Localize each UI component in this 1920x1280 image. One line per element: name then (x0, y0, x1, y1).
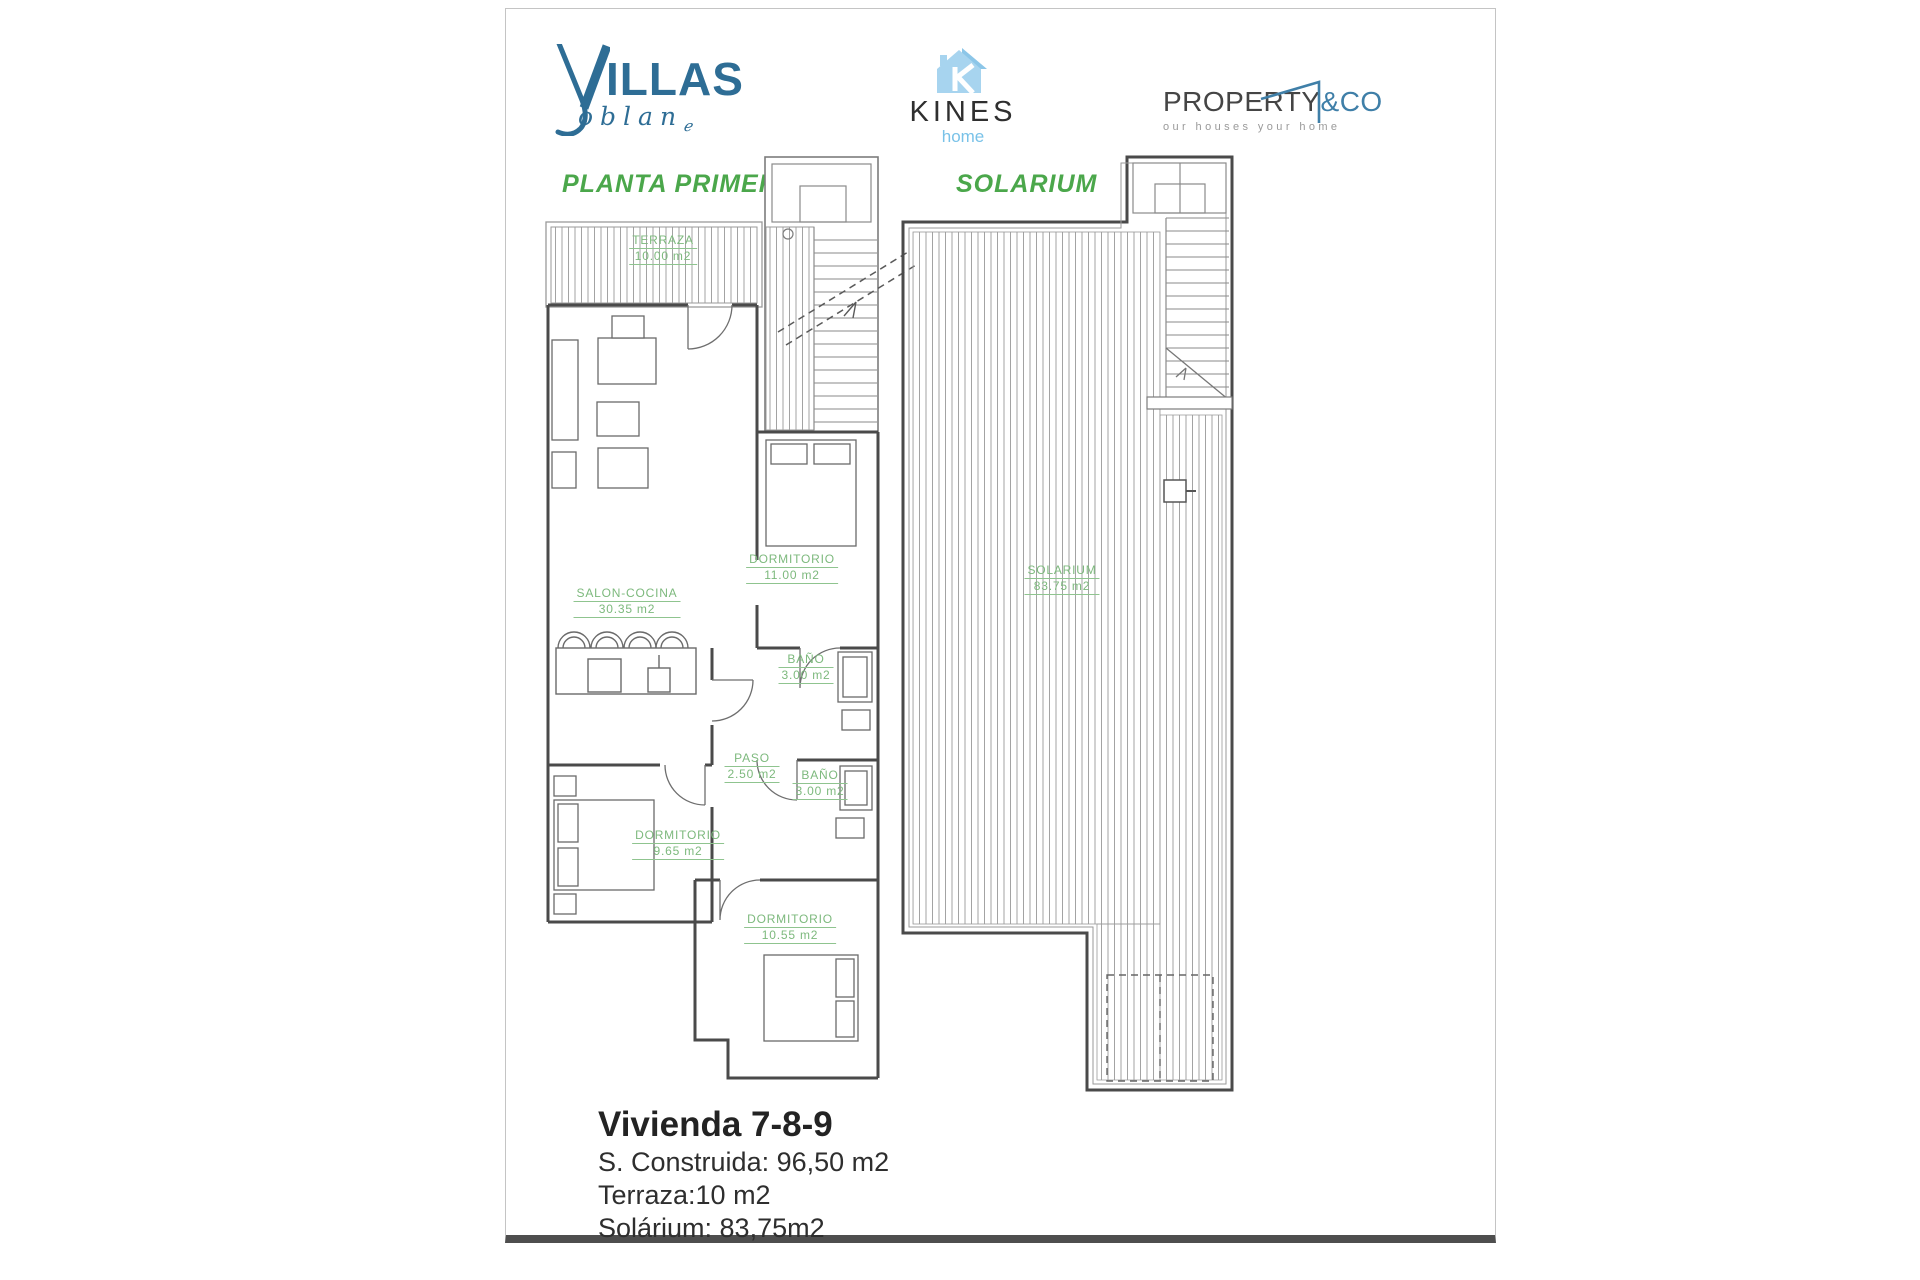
plan-left-beds (554, 440, 858, 1041)
room-label-bano-1: BAÑO 3.00 m2 (779, 652, 834, 684)
floor-plan-drawing (0, 0, 1920, 1280)
summary-terrace-area: Terraza:10 m2 (598, 1179, 889, 1212)
room-label-dormitorio-1055: DORMITORIO 10.55 m2 (744, 912, 836, 944)
plan-left-stairs (765, 157, 916, 432)
plan-left-bath-fixtures (836, 652, 872, 838)
plan-left-living-furniture (552, 316, 656, 488)
room-label-terraza: TERRAZA 10.00 m2 (629, 233, 697, 265)
room-label-dormitorio-11: DORMITORIO 11.00 m2 (746, 552, 838, 584)
plan-left-kitchen (556, 632, 696, 694)
room-label-bano-2: BAÑO 3.00 m2 (793, 768, 848, 800)
room-label-dormitorio-965: DORMITORIO 9.65 m2 (632, 828, 724, 860)
summary-built-area: S. Construida: 96,50 m2 (598, 1146, 889, 1179)
room-label-paso: PASO 2.50 m2 (725, 751, 780, 783)
plan-right-solarium (903, 157, 1232, 1090)
room-label-solarium: SOLARIUM 83.75 m2 (1024, 563, 1099, 595)
summary-title: Vivienda 7-8-9 (598, 1104, 889, 1146)
summary-block: Vivienda 7-8-9 S. Construida: 96,50 m2 T… (598, 1104, 889, 1245)
brochure-page: ILLAS oblanℯ KINES home PROPERTY&CO our … (0, 0, 1920, 1280)
room-label-salon-cocina: SALON-COCINA 30.35 m2 (574, 586, 681, 618)
summary-solarium-area: Solárium: 83,75m2 (598, 1212, 889, 1245)
